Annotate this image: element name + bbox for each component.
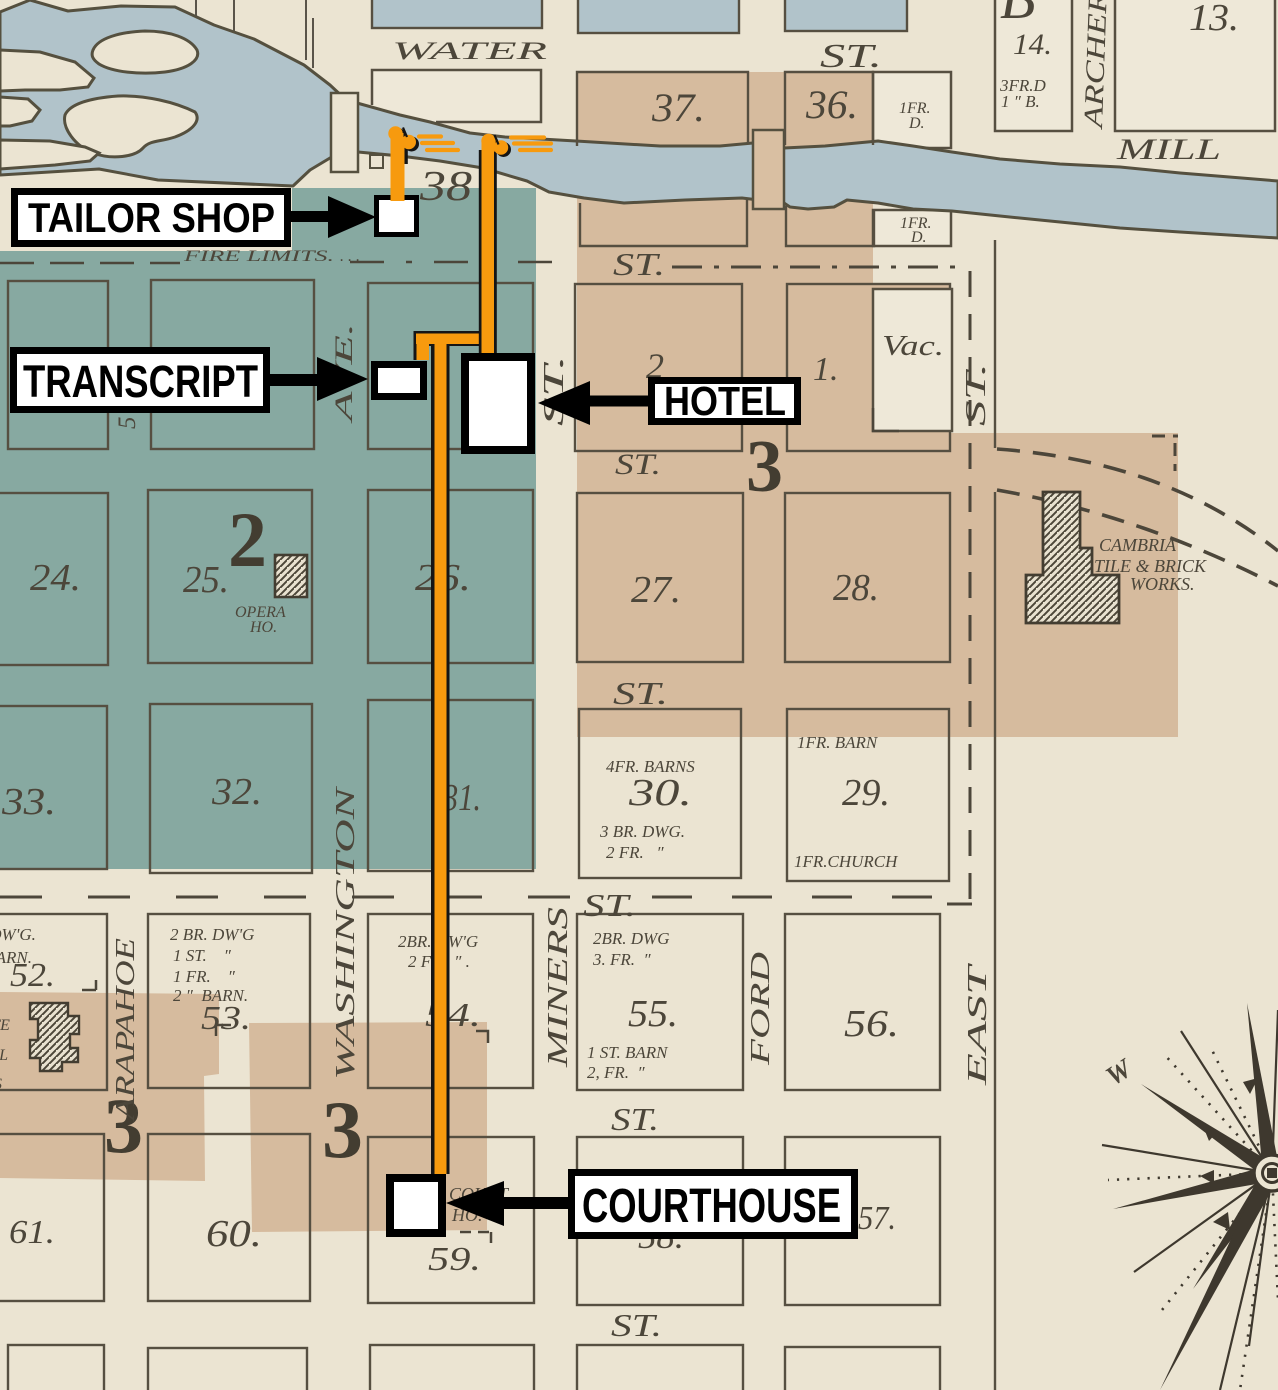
svg-text:1.: 1. [813,351,839,388]
svg-text:ST.: ST. [613,675,668,711]
svg-text:3: 3 [322,1084,363,1175]
svg-text:53.: 53. [201,1000,251,1037]
svg-text:ST.: ST. [615,448,661,481]
svg-text:S: S [0,1076,2,1093]
svg-text:38: 38 [419,164,472,210]
svg-text:1FR.CHURCH: 1FR.CHURCH [794,852,899,871]
svg-text:OOL: OOL [0,1047,8,1064]
svg-text:56.: 56. [844,1003,899,1045]
svg-text:MINERS: MINERS [543,907,574,1069]
svg-text:36.: 36. [805,82,858,127]
svg-text:FIRE LIMITS.: FIRE LIMITS. [182,248,334,265]
svg-text:TILE & BRICK: TILE & BRICK [1094,556,1207,576]
svg-text:61.: 61. [9,1214,55,1251]
svg-text:37.: 37. [651,85,705,130]
svg-text:14.: 14. [1013,28,1052,61]
svg-text:1 ″ B.: 1 ″ B. [1001,92,1040,111]
svg-text:27.: 27. [631,569,681,611]
svg-text:60.: 60. [206,1213,262,1255]
svg-text:30.: 30. [628,772,692,814]
svg-text:1 ST. ″: 1 ST. ″ [173,946,232,965]
svg-text:2 FR. ″: 2 FR. ″ [606,843,665,862]
svg-text:5: 5 [114,417,141,430]
svg-text:3 BR. DWG.: 3 BR. DWG. [599,822,685,841]
svg-text:29.: 29. [842,772,890,814]
svg-text:2BR. DWG: 2BR. DWG [593,929,669,948]
svg-text:33.: 33. [1,781,56,823]
svg-text:3: 3 [746,426,783,508]
svg-text:32.: 32. [211,771,262,813]
svg-text:WORKS.: WORKS. [1130,574,1195,594]
svg-text:FORD: FORD [745,951,775,1066]
svg-text:Vac.: Vac. [882,330,944,362]
svg-text:ST.: ST. [961,363,992,426]
svg-text:1FR. BARN: 1FR. BARN [797,733,879,752]
svg-text:59.: 59. [428,1241,481,1278]
svg-text:2 BR. DW'G: 2 BR. DW'G [170,925,254,944]
svg-text:D.: D. [910,229,927,246]
svg-text:55.: 55. [628,993,678,1035]
svg-text:1 ST. BARN: 1 ST. BARN [587,1043,669,1062]
svg-text:TAILOR SHOP: TAILOR SHOP [28,194,275,241]
svg-text:EAST: EAST [962,962,992,1087]
svg-text:TRANSCRIPT: TRANSCRIPT [23,356,258,407]
svg-text:WATER: WATER [392,38,547,65]
svg-text:52.: 52. [10,957,55,994]
svg-text:D.: D. [908,115,925,132]
svg-text:. . ._: . . ._ [340,248,369,265]
svg-text:3. FR. ″: 3. FR. ″ [592,950,652,969]
svg-text:24.: 24. [30,557,81,599]
svg-text:HOTEL: HOTEL [664,378,786,424]
svg-text:WASHINGTON: WASHINGTON [330,785,360,1080]
svg-text:BR. DW'G.: BR. DW'G. [0,925,36,944]
svg-text:2: 2 [228,496,267,583]
svg-text:COURTHOUSE: COURTHOUSE [582,1180,841,1233]
svg-text:13.: 13. [1189,0,1239,39]
svg-text:ST.: ST. [613,246,665,282]
svg-text:ATE: ATE [0,1017,10,1034]
svg-text:25.: 25. [183,559,229,601]
svg-text:ARAPAHOE: ARAPAHOE [110,937,140,1122]
svg-text:28.: 28. [833,567,879,609]
svg-text:ST.: ST. [820,38,882,75]
svg-text:1 FR. ″: 1 FR. ″ [173,967,236,986]
svg-text:CAMBRIA: CAMBRIA [1099,535,1177,555]
svg-text:HO.: HO. [249,619,277,636]
svg-text:ST.: ST. [611,1307,662,1343]
svg-text:ST.: ST. [538,355,570,426]
svg-text:ST.: ST. [583,887,636,923]
svg-text:2, FR. ″: 2, FR. ″ [587,1063,646,1082]
svg-text:57.: 57. [858,1200,896,1237]
svg-text:B: B [1000,0,1035,31]
svg-text:MILL: MILL [1115,133,1221,166]
svg-text:ARCHER: ARCHER [1078,0,1113,131]
svg-text:ST.: ST. [611,1101,659,1137]
